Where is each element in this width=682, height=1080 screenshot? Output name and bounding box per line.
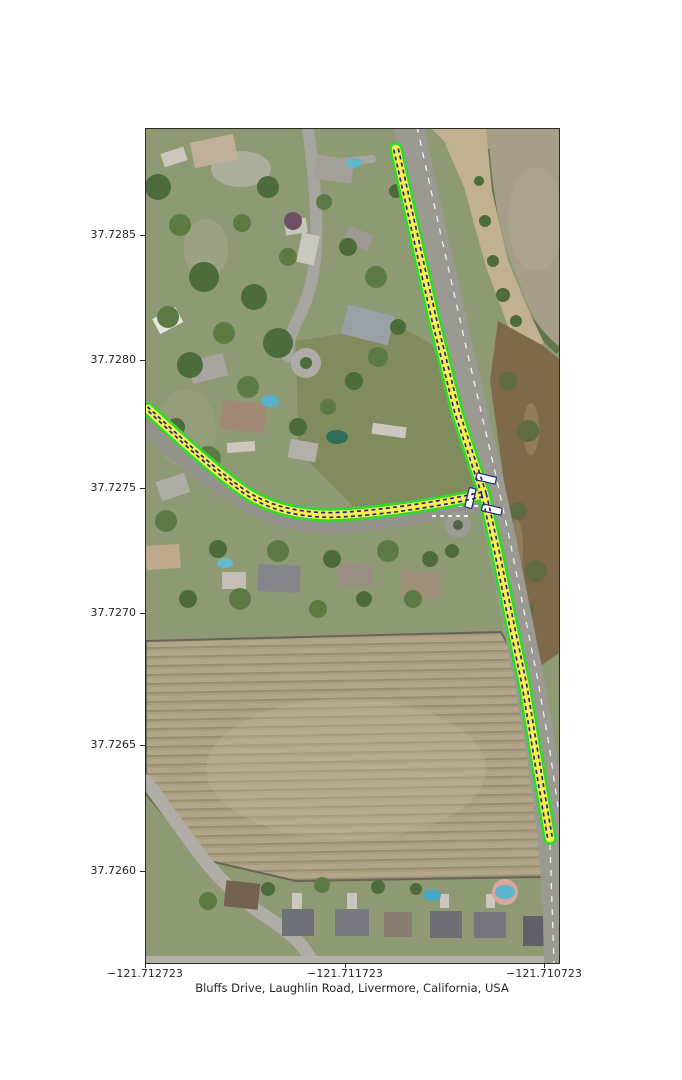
- x-axis-tick-label: −121.710723: [474, 967, 614, 981]
- x-axis-tick-label: −121.712723: [75, 967, 215, 981]
- y-axis-tick-label: 37.7285: [66, 228, 136, 242]
- circle-driveway-tree: [453, 520, 463, 530]
- aerial-basemap: [146, 129, 559, 963]
- y-axis-tick-label: 37.7275: [66, 481, 136, 495]
- y-axis-tick-label: 37.7280: [66, 353, 136, 367]
- x-axis-tick-label: −121.711723: [275, 967, 415, 981]
- y-axis-tick-label: 37.7265: [66, 738, 136, 752]
- plot-area: [145, 128, 560, 964]
- figure-caption: Bluffs Drive, Laughlin Road, Livermore, …: [145, 981, 559, 995]
- y-axis-tick-label: 37.7260: [66, 864, 136, 878]
- y-axis-tick-label: 37.7270: [66, 606, 136, 620]
- field-light-patch: [206, 699, 486, 839]
- cul-de-sac-tree: [300, 357, 312, 369]
- map-figure: 37.7285 37.7280 37.7275 37.7270 37.7265 …: [0, 0, 682, 1080]
